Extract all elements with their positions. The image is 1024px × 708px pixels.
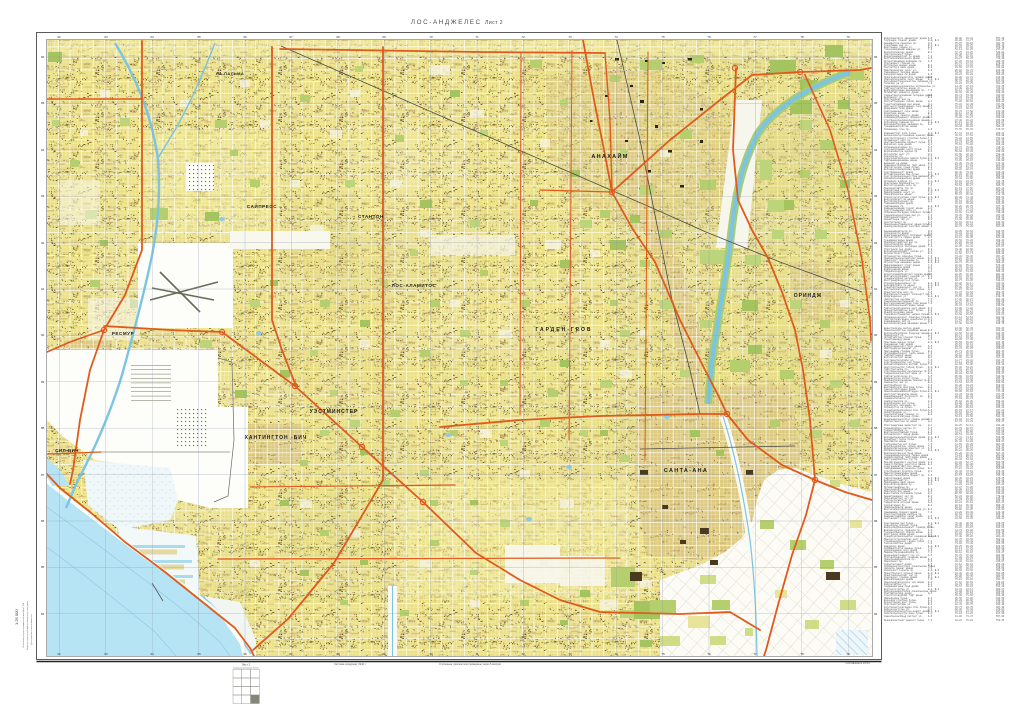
svg-text:87: 87 bbox=[874, 473, 878, 477]
svg-text:СТАНТОН: СТАНТОН bbox=[358, 214, 384, 219]
svg-text:90: 90 bbox=[41, 333, 45, 337]
svg-text:91: 91 bbox=[41, 287, 45, 291]
svg-text:74: 74 bbox=[614, 35, 618, 39]
svg-text:73: 73 bbox=[568, 652, 572, 656]
svg-text:88: 88 bbox=[41, 426, 45, 430]
svg-text:ХАНТИНГТОН -БИЧ: ХАНТИНГТОН -БИЧ bbox=[245, 435, 308, 441]
svg-text:69: 69 bbox=[382, 652, 386, 656]
svg-text:70: 70 bbox=[429, 652, 433, 656]
svg-text:86: 86 bbox=[874, 519, 878, 523]
svg-text:78: 78 bbox=[800, 652, 804, 656]
svg-text:75: 75 bbox=[661, 35, 665, 39]
svg-text:95: 95 bbox=[41, 101, 45, 105]
svg-text:Отпечатано на картографической: Отпечатано на картографической фабрике Г… bbox=[22, 602, 25, 648]
svg-text:96: 96 bbox=[41, 55, 45, 59]
svg-text:62: 62 bbox=[57, 652, 61, 656]
svg-text:88: 88 bbox=[874, 426, 878, 430]
svg-text:66: 66 bbox=[243, 35, 247, 39]
svg-text:Схема расположения листов: Схема расположения листов bbox=[233, 668, 258, 670]
svg-text:67: 67 bbox=[289, 35, 293, 39]
svg-text:Составлено в 1978 г.: Составлено в 1978 г. bbox=[845, 661, 870, 665]
svg-text:Система координат 1942 г.: Система координат 1942 г. bbox=[334, 662, 366, 666]
svg-text:65: 65 bbox=[197, 652, 201, 656]
svg-text:67: 67 bbox=[289, 652, 293, 656]
svg-text:71: 71 bbox=[475, 35, 479, 39]
svg-text:78: 78 bbox=[800, 35, 804, 39]
svg-text:68: 68 bbox=[336, 35, 340, 39]
svg-text:ГАРДЕН-ГРОВ: ГАРДЕН-ГРОВ bbox=[536, 327, 593, 333]
svg-text:1:25 000: 1:25 000 bbox=[14, 609, 19, 625]
svg-text:ЛОС-АНДЖЕЛЕС Лист 2: ЛОС-АНДЖЕЛЕС Лист 2 bbox=[411, 19, 503, 26]
svg-text:94: 94 bbox=[874, 148, 878, 152]
svg-text:77: 77 bbox=[753, 35, 757, 39]
svg-text:79: 79 bbox=[846, 652, 850, 656]
svg-text:93: 93 bbox=[874, 194, 878, 198]
svg-text:91: 91 bbox=[874, 287, 878, 291]
svg-text:69: 69 bbox=[382, 35, 386, 39]
svg-text:90: 90 bbox=[874, 333, 878, 337]
svg-text:66: 66 bbox=[243, 652, 247, 656]
svg-text:65: 65 bbox=[197, 35, 201, 39]
svg-text:75: 75 bbox=[661, 652, 665, 656]
svg-text:79: 79 bbox=[846, 35, 850, 39]
svg-text:УЭСТМИНСТЕР: УЭСТМИНСТЕР bbox=[310, 409, 359, 415]
svg-text:96: 96 bbox=[874, 55, 878, 59]
svg-text:АНАХАЙМ: АНАХАЙМ bbox=[591, 152, 628, 160]
svg-text:87: 87 bbox=[41, 473, 45, 477]
svg-text:62: 62 bbox=[57, 35, 61, 39]
svg-text:76: 76 bbox=[707, 652, 711, 656]
svg-text:89: 89 bbox=[41, 380, 45, 384]
svg-text:70: 70 bbox=[429, 35, 433, 39]
svg-text:64: 64 bbox=[150, 652, 154, 656]
svg-text:Сплошные горизонтали проведены: Сплошные горизонтали проведены через 5 м… bbox=[439, 662, 501, 666]
svg-text:САЙПРЕСС: САЙПРЕСС bbox=[247, 202, 277, 209]
svg-text:93: 93 bbox=[41, 194, 45, 198]
svg-text:92: 92 bbox=[41, 241, 45, 245]
svg-text:95: 95 bbox=[874, 101, 878, 105]
svg-text:71: 71 bbox=[475, 652, 479, 656]
svg-text:89: 89 bbox=[874, 380, 878, 384]
svg-text:ЛА-ПАЛЬМА: ЛА-ПАЛЬМА bbox=[216, 71, 244, 76]
svg-text:85: 85 bbox=[874, 565, 878, 569]
svg-text:84: 84 bbox=[874, 612, 878, 616]
svg-text:74: 74 bbox=[614, 652, 618, 656]
svg-text:ЛОС-АЛАМИТОС: ЛОС-АЛАМИТОС bbox=[392, 283, 437, 288]
svg-text:92: 92 bbox=[874, 241, 878, 245]
svg-text:СИЛ-БИЧ: СИЛ-БИЧ bbox=[55, 448, 79, 453]
svg-text:САНТА-АНА: САНТА-АНА bbox=[664, 468, 708, 474]
svg-text:ОРИНДЖ: ОРИНДЖ bbox=[794, 293, 823, 299]
svg-text:86: 86 bbox=[41, 519, 45, 523]
svg-text:63: 63 bbox=[104, 652, 108, 656]
svg-text:63: 63 bbox=[104, 35, 108, 39]
svg-text:73: 73 bbox=[568, 35, 572, 39]
svg-text:72: 72 bbox=[521, 652, 525, 656]
svg-text:РЕСМУР: РЕСМУР bbox=[112, 331, 134, 336]
svg-text:84: 84 bbox=[41, 612, 45, 616]
svg-text:64: 64 bbox=[150, 35, 154, 39]
svg-text:72: 72 bbox=[521, 35, 525, 39]
svg-text:94: 94 bbox=[41, 148, 45, 152]
svg-text:Лист 2: Лист 2 bbox=[242, 663, 251, 667]
svg-text:85: 85 bbox=[41, 565, 45, 569]
svg-text:68: 68 bbox=[336, 652, 340, 656]
svg-text:77: 77 bbox=[753, 652, 757, 656]
svg-text:76: 76 bbox=[707, 35, 711, 39]
svg-text:Для служебного пользования экз: Для служебного пользования экз bbox=[31, 614, 33, 645]
svg-text:Редактор карты и составители и: Редактор карты и составители инженеры то… bbox=[26, 600, 29, 650]
